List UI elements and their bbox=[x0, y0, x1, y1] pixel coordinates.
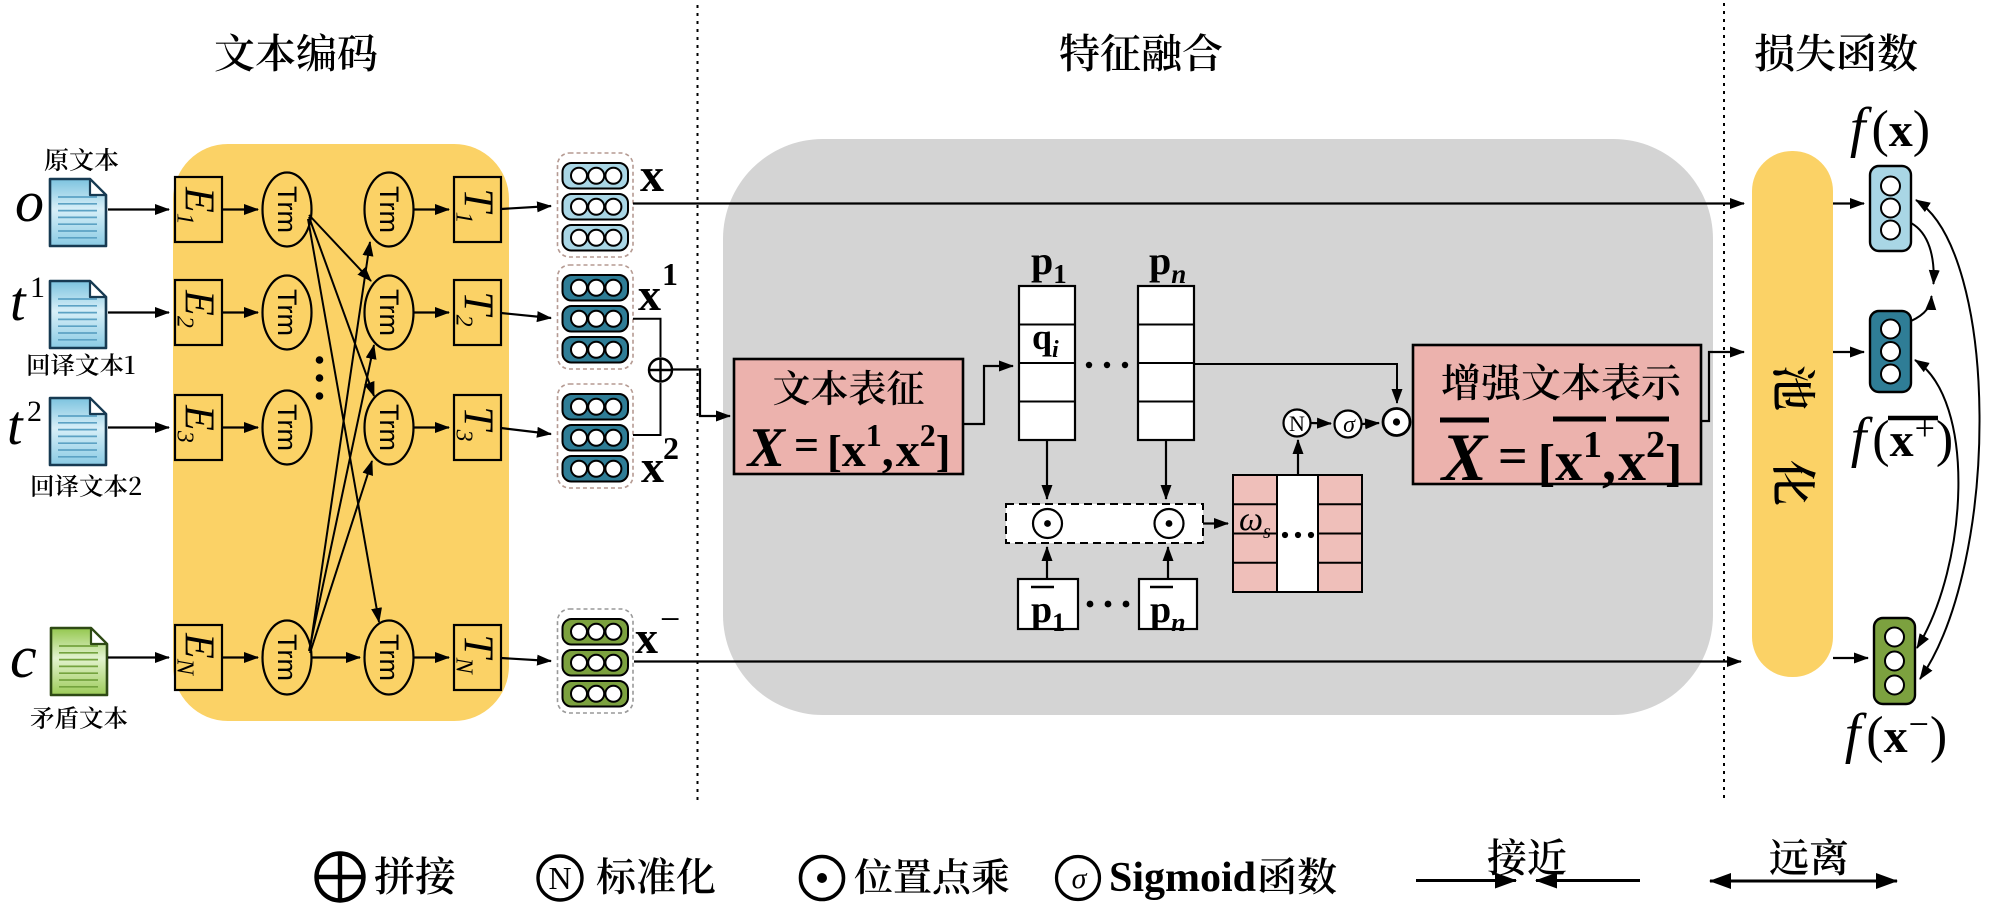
svg-text:N: N bbox=[548, 860, 571, 896]
svg-text:2: 2 bbox=[27, 395, 42, 428]
svg-text:Trm: Trm bbox=[272, 186, 302, 233]
svg-text:[: [ bbox=[827, 427, 842, 476]
svg-text:1: 1 bbox=[1583, 424, 1602, 466]
svg-text:−: − bbox=[660, 599, 680, 639]
svg-text:σ: σ bbox=[1072, 862, 1088, 895]
svg-text:x: x bbox=[1884, 710, 1908, 763]
svg-text:=: = bbox=[1498, 428, 1528, 485]
svg-text:Trm: Trm bbox=[374, 289, 404, 336]
svg-text:Trm: Trm bbox=[374, 404, 404, 451]
svg-text:Sigmoid: Sigmoid bbox=[1109, 855, 1256, 901]
svg-text:σ: σ bbox=[1343, 412, 1356, 438]
svg-text:x: x bbox=[1618, 431, 1646, 493]
svg-text:,: , bbox=[1602, 431, 1616, 493]
svg-text:X: X bbox=[746, 417, 787, 479]
svg-text:1: 1 bbox=[662, 256, 678, 292]
svg-text:f: f bbox=[1845, 703, 1868, 765]
svg-text:x: x bbox=[842, 424, 866, 477]
svg-text:]: ] bbox=[1665, 435, 1682, 492]
svg-text:Trm: Trm bbox=[272, 404, 302, 451]
svg-text:o: o bbox=[15, 169, 44, 234]
svg-text:2: 2 bbox=[663, 430, 679, 466]
svg-text:c: c bbox=[10, 624, 37, 690]
svg-text:x: x bbox=[896, 424, 920, 477]
svg-text:f: f bbox=[1850, 97, 1873, 159]
svg-text:=: = bbox=[794, 421, 819, 470]
svg-text:x: x bbox=[640, 149, 664, 202]
svg-text:2: 2 bbox=[920, 417, 936, 453]
svg-text:+: + bbox=[1915, 408, 1935, 448]
svg-text:[: [ bbox=[1538, 435, 1555, 492]
svg-text:x: x bbox=[638, 269, 661, 320]
svg-text:1: 1 bbox=[866, 417, 882, 453]
svg-text:(: ( bbox=[1866, 707, 1883, 764]
svg-text:Trm: Trm bbox=[272, 634, 302, 681]
svg-text:,: , bbox=[882, 424, 894, 477]
svg-text:x: x bbox=[1890, 414, 1914, 467]
svg-text:]: ] bbox=[936, 427, 951, 476]
svg-text:(: ( bbox=[1872, 101, 1889, 158]
svg-text:Trm: Trm bbox=[272, 289, 302, 336]
svg-text:N: N bbox=[1289, 411, 1305, 436]
svg-text:2: 2 bbox=[1646, 424, 1665, 466]
svg-text:X: X bbox=[1440, 419, 1489, 495]
svg-text:1: 1 bbox=[30, 271, 45, 304]
svg-text:(: ( bbox=[1872, 411, 1889, 468]
svg-text:−: − bbox=[1909, 704, 1929, 744]
svg-text:Trm: Trm bbox=[374, 634, 404, 681]
svg-text:t: t bbox=[10, 271, 27, 333]
svg-text:Trm: Trm bbox=[374, 186, 404, 233]
svg-text:x: x bbox=[1889, 104, 1913, 157]
svg-text:x: x bbox=[1555, 431, 1583, 493]
svg-text:x: x bbox=[641, 441, 664, 492]
svg-text:t: t bbox=[7, 395, 24, 457]
svg-text:x: x bbox=[635, 612, 658, 663]
svg-text:): ) bbox=[1930, 707, 1947, 764]
svg-text:): ) bbox=[1913, 101, 1930, 158]
svg-text:f: f bbox=[1851, 407, 1874, 469]
